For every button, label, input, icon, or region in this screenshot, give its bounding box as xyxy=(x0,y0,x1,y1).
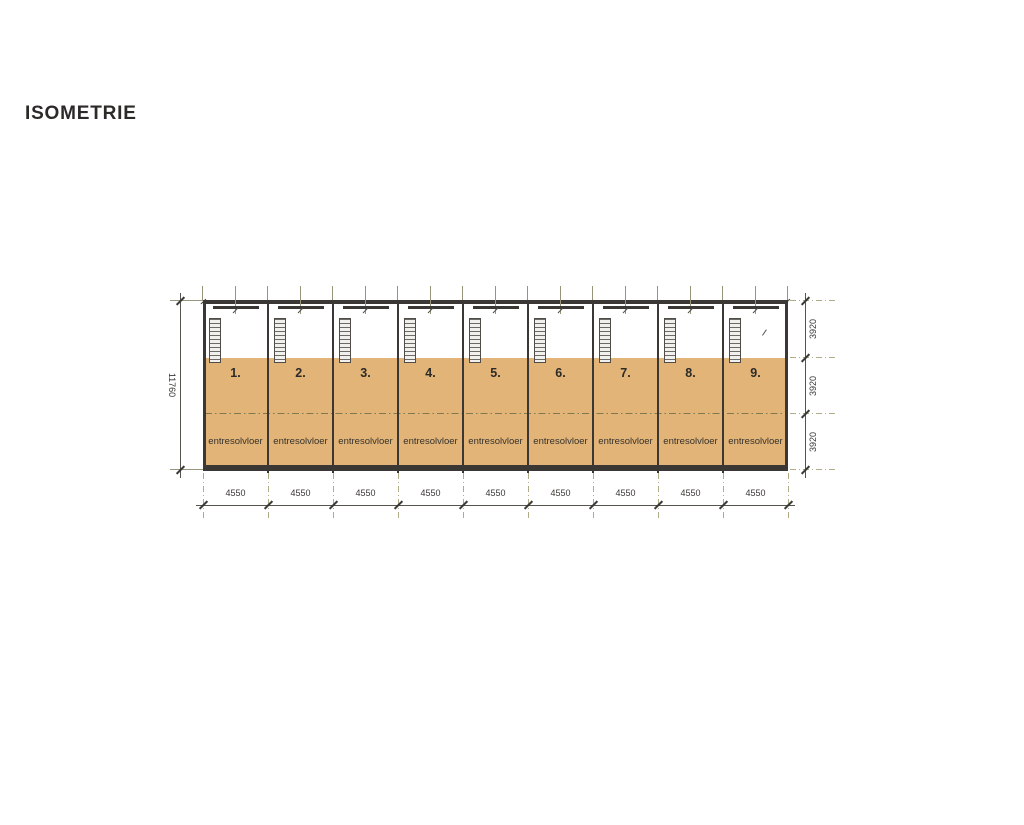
dim-bay-width: 4550 xyxy=(593,488,658,498)
unit-1: 1. entresolvloer xyxy=(203,300,268,471)
page-title: ISOMETRIE xyxy=(25,103,137,125)
entresol-floor-label: entresolvloer xyxy=(463,436,528,447)
boundary-grid-line xyxy=(527,286,528,300)
boundary-grid-line xyxy=(592,286,593,300)
unit-number: 7. xyxy=(593,366,658,380)
unit-2: 2. entresolvloer xyxy=(268,300,333,471)
unit-6: 6. entresolvloer xyxy=(528,300,593,471)
floor-plan-drawing: 1. entresolvloer 2. entresolvloer 3. ent… xyxy=(203,300,788,471)
entresol-floor-label: entresolvloer xyxy=(333,436,398,447)
dim-segment-height: 3920 xyxy=(807,371,819,401)
boundary-grid-line xyxy=(787,286,788,300)
entresol-floor-label: entresolvloer xyxy=(398,436,463,447)
extension-line xyxy=(170,300,203,301)
dim-segment-height: 3920 xyxy=(807,314,819,344)
entresol-floor-label: entresolvloer xyxy=(658,436,723,447)
right-wall xyxy=(785,300,788,471)
entresol-floor-label: entresolvloer xyxy=(723,436,788,447)
entresol-floor-label: entresolvloer xyxy=(528,436,593,447)
stairs-icon xyxy=(729,318,741,363)
stairs-icon xyxy=(274,318,286,363)
entresol-floor-label: entresolvloer xyxy=(268,436,333,447)
entresol-floor-label: entresolvloer xyxy=(203,436,268,447)
extension-line xyxy=(790,357,838,358)
boundary-grid-line xyxy=(202,286,203,300)
boundary-grid-line xyxy=(332,286,333,300)
extension-line xyxy=(790,300,838,301)
stairs-icon xyxy=(339,318,351,363)
unit-number: 3. xyxy=(333,366,398,380)
unit-number: 6. xyxy=(528,366,593,380)
left-dimension-line xyxy=(180,293,181,478)
boundary-grid-line xyxy=(722,286,723,300)
stairs-icon xyxy=(209,318,221,363)
drawing-sheet: ISOMETRIE 1. entresolvloer 2. entresolvl… xyxy=(0,0,1024,825)
unit-number: 4. xyxy=(398,366,463,380)
boundary-grid-line xyxy=(397,286,398,300)
extension-line xyxy=(790,469,838,470)
entresol-floor-label: entresolvloer xyxy=(593,436,658,447)
left-wall xyxy=(203,300,206,471)
stairs-icon xyxy=(534,318,546,363)
dim-bay-width: 4550 xyxy=(658,488,723,498)
dim-bay-width: 4550 xyxy=(528,488,593,498)
dim-bay-width: 4550 xyxy=(463,488,528,498)
dim-total-height: 11760 xyxy=(166,370,178,400)
unit-number: 8. xyxy=(658,366,723,380)
unit-7: 7. entresolvloer xyxy=(593,300,658,471)
extension-line xyxy=(790,413,838,414)
stairs-icon xyxy=(404,318,416,363)
bottom-dimension-line xyxy=(196,505,795,506)
dim-bay-width: 4550 xyxy=(398,488,463,498)
boundary-grid-line xyxy=(267,286,268,300)
stairs-icon xyxy=(469,318,481,363)
unit-3: 3. entresolvloer xyxy=(333,300,398,471)
dim-segment-height: 3920 xyxy=(807,427,819,457)
unit-8: 8. entresolvloer xyxy=(658,300,723,471)
boundary-grid-line xyxy=(657,286,658,300)
unit-number: 9. xyxy=(723,366,788,380)
right-dimension-line xyxy=(805,293,806,478)
unit-9: 9. entresolvloer xyxy=(723,300,788,471)
dim-bay-width: 4550 xyxy=(203,488,268,498)
unit-4: 4. entresolvloer xyxy=(398,300,463,471)
unit-5: 5. entresolvloer xyxy=(463,300,528,471)
unit-number: 5. xyxy=(463,366,528,380)
dim-bay-width: 4550 xyxy=(268,488,333,498)
extension-line xyxy=(170,469,203,470)
stairs-icon xyxy=(599,318,611,363)
unit-number: 2. xyxy=(268,366,333,380)
dim-bay-width: 4550 xyxy=(723,488,788,498)
dim-bay-width: 4550 xyxy=(333,488,398,498)
unit-number: 1. xyxy=(203,366,268,380)
break-mark xyxy=(762,329,767,335)
stairs-icon xyxy=(664,318,676,363)
boundary-grid-line xyxy=(462,286,463,300)
